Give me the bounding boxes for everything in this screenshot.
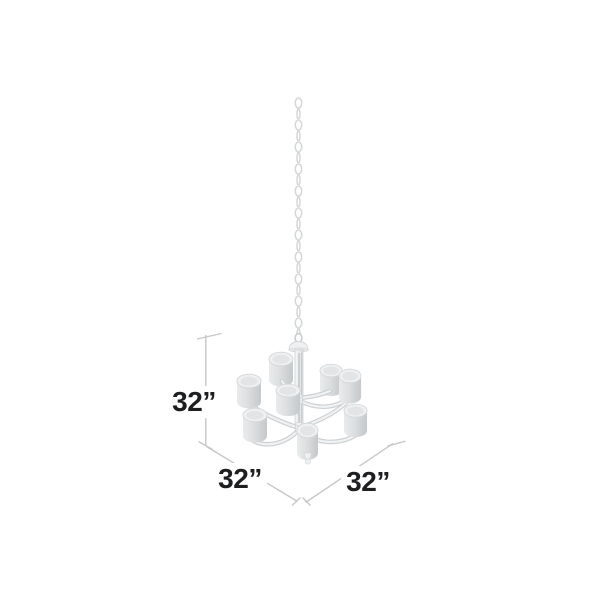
width-dimension-label: 32” [341,466,395,498]
drum-shade [344,404,367,437]
width-end-tick [388,441,406,446]
dimension-diagram: 32” 32” 32” [0,0,600,600]
drum-shade [243,408,267,442]
drum-shade [339,369,361,403]
height-top-tick [197,334,222,340]
hanging-chain [294,97,304,337]
height-dimension-label: 32” [167,386,221,418]
drum-shade [276,384,300,416]
drum-shade [237,374,261,408]
chandelier-dimension-drawing [0,0,600,600]
depth-dimension-label: 32” [213,463,267,495]
width-start-tick [303,498,311,506]
chandelier-illustration [237,334,367,465]
bottom-finial [304,453,312,464]
